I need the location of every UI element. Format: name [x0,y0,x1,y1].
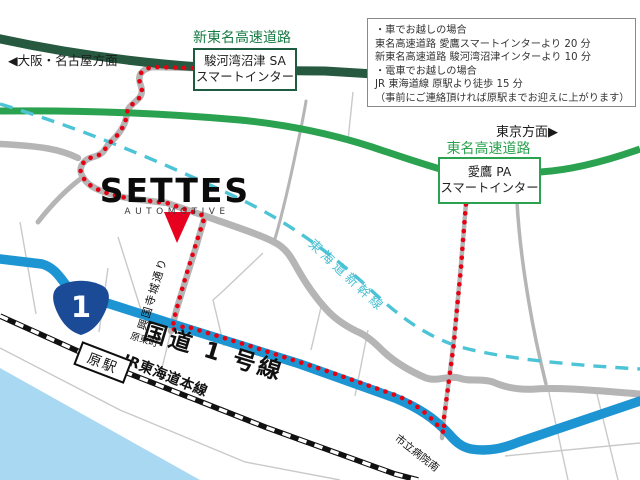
road-west-feeder [0,144,78,158]
settes-logo-name: SETTES [95,174,255,207]
access-map: 1 ◀大阪・名古屋方面 東京方面▶ 新東名高速道路 駿河湾沼津 SA スマートイ… [0,0,640,480]
access-info-box: ・車でお越しの場合 東名高速道路 愛鷹スマートインターより 20 分 新東名高速… [367,18,636,107]
surugawan-numazu-sa-box: 駿河湾沼津 SA スマートインター [193,48,297,91]
tomei-expressway-label: 東名高速道路 [439,138,538,158]
pa-box-line1: 愛鷹 PA [468,165,512,181]
info-line-tomei: 東名高速道路 愛鷹スマートインターより 20 分 [375,38,628,52]
info-line-jr: JR 東海道線 原駅より徒歩 15 分 [375,78,628,92]
road-southwest-spur [38,177,83,222]
settes-logo: SETTES AUTOMOTIVE [95,174,255,217]
shin-tomei-expressway-label: 新東名高速道路 [189,27,295,47]
info-line-by-car: ・車でお越しの場合 [375,24,628,38]
info-line-by-train: ・電車でお越しの場合 [375,65,628,79]
pa-box-line2: スマートインター [440,181,538,197]
sa-box-line2: スマートインター [196,70,294,86]
info-line-pickup: （事前にご連絡頂ければ原駅までお迎えに上がります） [375,92,628,106]
tomei-expressway-road [0,111,640,172]
road-pa-east [517,202,546,384]
ashitaka-pa-box: 愛鷹 PA スマートインター [438,157,541,204]
route1-shield-number: 1 [71,290,91,324]
route1-shield: 1 [53,281,109,335]
sa-box-line1: 駿河湾沼津 SA [204,54,286,70]
direction-sign-west: ◀大阪・名古屋方面 [8,50,118,69]
info-line-shin-tomei: 新東名高速道路 駿河湾沼津インターより 10 分 [375,51,628,65]
